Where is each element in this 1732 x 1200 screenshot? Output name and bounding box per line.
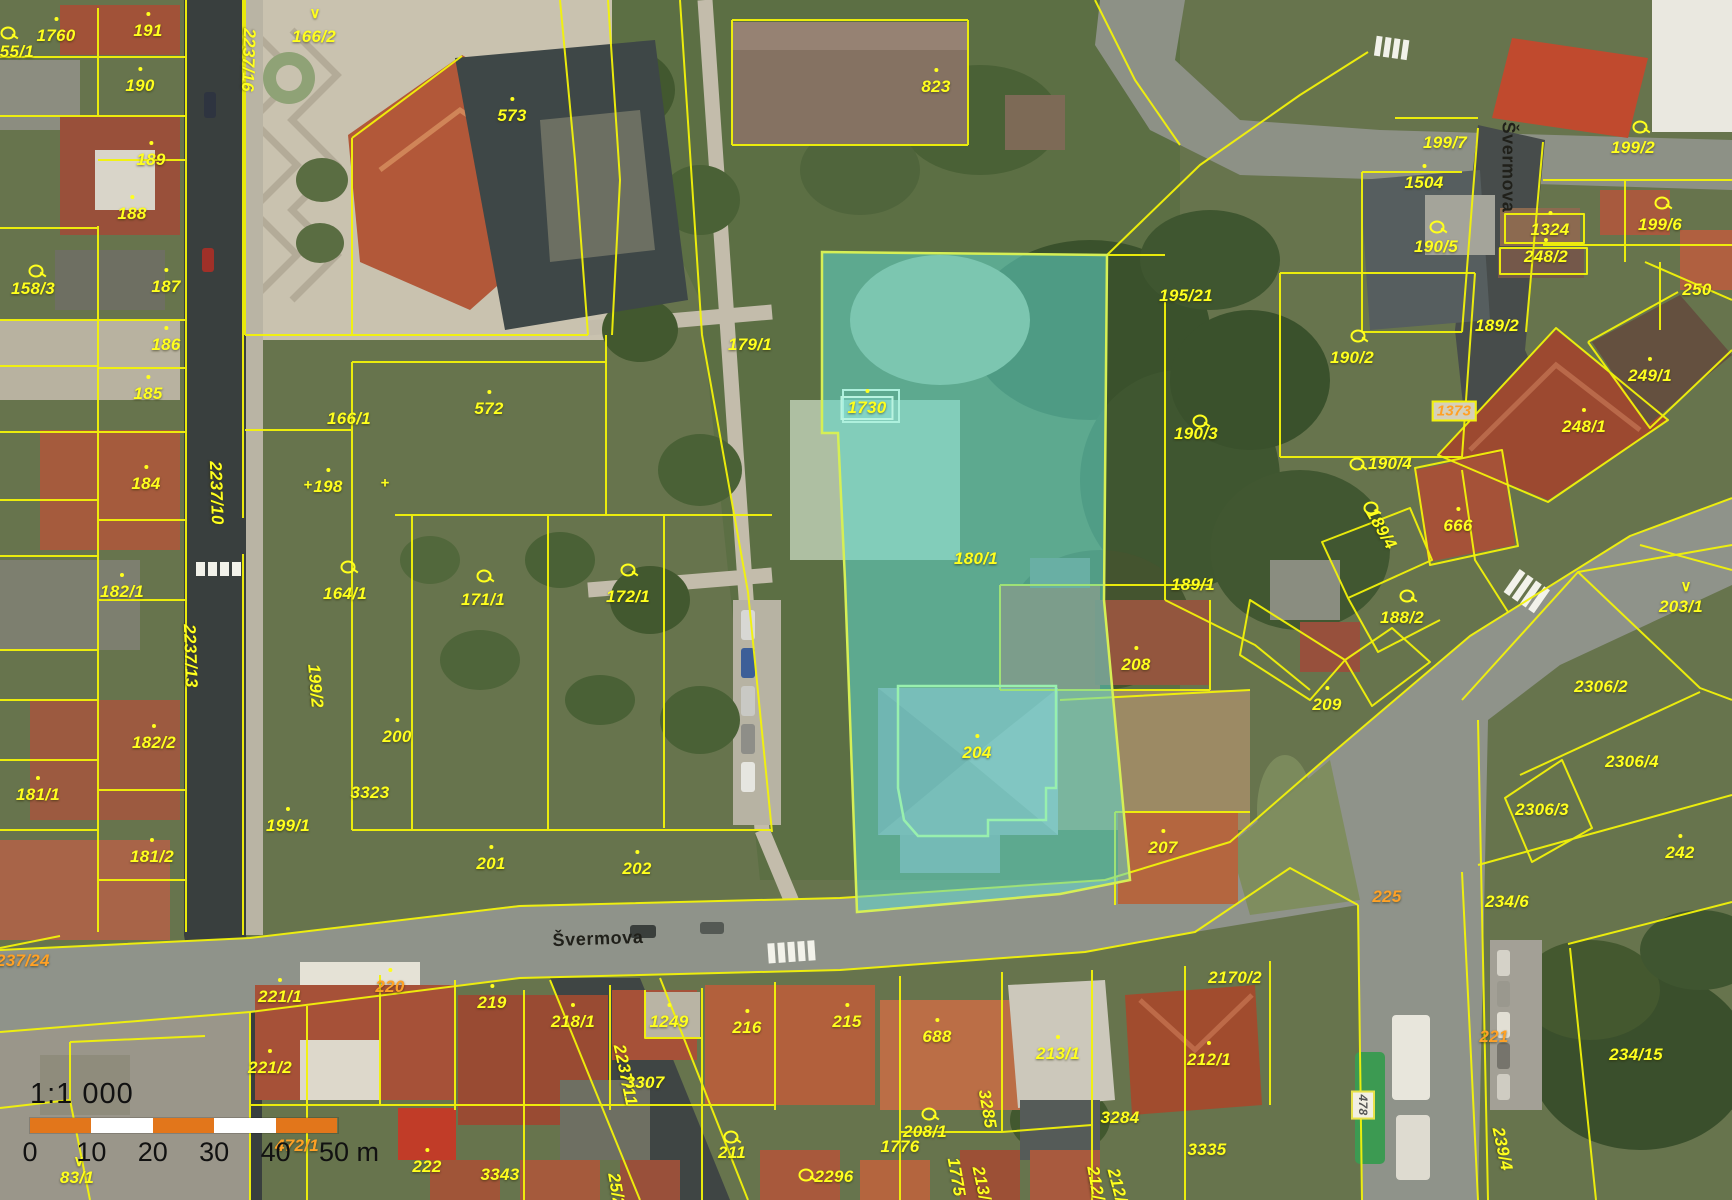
parcel-label: 1373 — [1432, 401, 1477, 422]
circle-map-symbol — [621, 564, 636, 577]
scale-ruler — [30, 1118, 338, 1133]
parcel-label: 166/1 — [327, 409, 371, 429]
scale-tick: 40 — [261, 1137, 291, 1168]
parcel-label: 164/1 — [323, 584, 367, 604]
parcel-label: 2306/3 — [1515, 800, 1569, 820]
parcel-label: 2237/24 — [0, 951, 50, 971]
parcel-label: 249/1 — [1628, 366, 1672, 386]
parcel-label: 199/1 — [266, 816, 310, 836]
map-canvas[interactable]: 1760155/1191190189188187158/3166/22237/1… — [0, 0, 1732, 1200]
parcel-label: 216 — [732, 1018, 761, 1038]
parcel-label: 181/1 — [16, 785, 60, 805]
parcel-label: 185 — [133, 384, 162, 404]
parcel-label: 1249 — [649, 1012, 688, 1032]
scale-tick: 0 — [22, 1137, 37, 1168]
parcel-label: 1730 — [840, 396, 893, 420]
parcel-label: 3335 — [1187, 1140, 1226, 1160]
scale-bar: 1:1 000 01020304050 m — [30, 1078, 360, 1173]
scale-tick: 20 — [138, 1137, 168, 1168]
scale-segment — [30, 1118, 91, 1133]
parcel-label: 25/2 — [603, 1171, 629, 1200]
parcel-label: 250 — [1682, 280, 1711, 300]
parcel-label: 2296 — [814, 1167, 853, 1187]
parcel-label: 195/21 — [1159, 286, 1213, 306]
scale-tick: 10 — [76, 1137, 106, 1168]
parcel-label: 199/7 — [1423, 133, 1467, 153]
v-map-symbol: ∨ — [1681, 577, 1692, 595]
parcel-label: 221/2 — [248, 1058, 292, 1078]
scale-tick: 30 — [199, 1137, 229, 1168]
parcel-label: 221 — [1479, 1027, 1508, 1047]
parcel-label: 225 — [1372, 887, 1401, 907]
circle-map-symbol — [1, 27, 16, 40]
parcel-label: 182/2 — [132, 733, 176, 753]
parcel-label: 189 — [136, 150, 165, 170]
parcel-label: 212/1 — [1187, 1050, 1231, 1070]
parcel-label: 198 — [313, 477, 342, 497]
parcel-label: 182/1 — [100, 582, 144, 602]
circle-map-symbol — [1350, 458, 1365, 471]
parcel-label: 2306/4 — [1605, 752, 1659, 772]
parcel-label: 823 — [921, 77, 950, 97]
parcel-label: 190/4 — [1368, 454, 1412, 474]
parcel-label: 184 — [131, 474, 160, 494]
parcel-label: 200 — [382, 727, 411, 747]
circle-map-symbol — [1430, 221, 1445, 234]
parcel-label: 688 — [922, 1027, 951, 1047]
scale-tick-labels: 01020304050 m — [30, 1137, 360, 1173]
parcel-label: 248/2 — [1524, 247, 1568, 267]
scale-segment — [276, 1118, 337, 1133]
label-layer: 1760155/1191190189188187158/3166/22237/1… — [0, 0, 1732, 1200]
parcel-label: 572 — [474, 399, 503, 419]
parcel-label: 180/1 — [954, 549, 998, 569]
parcel-label: 191 — [133, 21, 162, 41]
parcel-label: 187 — [151, 277, 180, 297]
parcel-label: 2170/2 — [1208, 968, 1262, 988]
parcel-label: 1504 — [1404, 173, 1443, 193]
parcel-label: 573 — [497, 106, 526, 126]
circle-map-symbol — [1400, 590, 1415, 603]
parcel-label: 199/6 — [1638, 215, 1682, 235]
parcel-label: 666 — [1443, 516, 1472, 536]
parcel-label: 207 — [1148, 838, 1177, 858]
circle-map-symbol — [1364, 502, 1379, 515]
scale-segment — [153, 1118, 214, 1133]
street-label: Švermova — [1498, 122, 1519, 213]
scale-segment — [214, 1118, 275, 1133]
circle-map-symbol — [724, 1131, 739, 1144]
parcel-label: 239/4 — [1488, 1125, 1517, 1172]
parcel-label: 190/5 — [1414, 237, 1458, 257]
parcel-label: 234/6 — [1485, 892, 1529, 912]
parcel-label: 3343 — [480, 1165, 519, 1185]
circle-map-symbol — [29, 265, 44, 278]
cross-map-symbol: + — [304, 477, 313, 494]
parcel-label: 188/2 — [1380, 608, 1424, 628]
parcel-label: 203/1 — [1659, 597, 1703, 617]
parcel-label: 2237/13 — [179, 624, 201, 688]
parcel-label: 190 — [125, 76, 154, 96]
parcel-label: 204 — [962, 743, 991, 763]
parcel-label: 3323 — [350, 783, 389, 803]
parcel-label: 2237/16 — [237, 28, 259, 92]
circle-map-symbol — [1655, 197, 1670, 210]
parcel-label: 221/1 — [258, 987, 302, 1007]
parcel-label: 222 — [412, 1157, 441, 1177]
circle-map-symbol — [1193, 415, 1208, 428]
parcel-label: 199/2 — [1611, 138, 1655, 158]
parcel-label: 3307 — [625, 1073, 664, 1093]
parcel-label: 2306/2 — [1574, 677, 1628, 697]
parcel-label: 2237/10 — [205, 461, 227, 525]
circle-map-symbol — [341, 561, 356, 574]
parcel-label: 189/2 — [1475, 316, 1519, 336]
scale-segment — [91, 1118, 152, 1133]
parcel-label: 248/1 — [1562, 417, 1606, 437]
parcel-label: 1775 — [943, 1156, 969, 1198]
parcel-label: 172/1 — [606, 587, 650, 607]
parcel-label: 186 — [151, 335, 180, 355]
parcel-label: 181/2 — [130, 847, 174, 867]
parcel-label: 158/3 — [11, 279, 55, 299]
scale-ratio-label: 1:1 000 — [30, 1078, 360, 1111]
parcel-label: 3285 — [974, 1088, 1000, 1130]
parcel-label: 202 — [622, 859, 651, 879]
parcel-label: 1324 — [1530, 220, 1569, 240]
parcel-label: 171/1 — [461, 590, 505, 610]
circle-map-symbol — [1633, 121, 1648, 134]
street-label: Švermova — [552, 927, 644, 951]
parcel-label: 213/2 — [968, 1164, 997, 1200]
parcel-label: 213/1 — [1036, 1044, 1080, 1064]
circle-map-symbol — [1351, 330, 1366, 343]
parcel-label: 190/2 — [1330, 348, 1374, 368]
scale-tick: 50 m — [319, 1137, 379, 1168]
parcel-label: 209 — [1312, 695, 1341, 715]
parcel-label: 234/15 — [1609, 1045, 1663, 1065]
parcel-label: 1776 — [880, 1137, 919, 1157]
parcel-label: 166/2 — [292, 27, 336, 47]
cross-map-symbol: + — [381, 475, 390, 492]
parcel-label: 218/1 — [551, 1012, 595, 1032]
parcel-label: 219 — [477, 993, 506, 1013]
circle-map-symbol — [477, 570, 492, 583]
parcel-label: 190/3 — [1174, 424, 1218, 444]
v-map-symbol: ∨ — [310, 4, 321, 22]
parcel-label: 189/1 — [1171, 575, 1215, 595]
circle-map-symbol — [922, 1108, 937, 1121]
parcel-label: 199/2 — [303, 663, 327, 709]
parcel-label: 478 — [1351, 1091, 1375, 1120]
parcel-label: 215 — [832, 1012, 861, 1032]
parcel-label: 179/1 — [728, 335, 772, 355]
parcel-label: 220 — [375, 977, 404, 997]
parcel-label: 242 — [1665, 843, 1694, 863]
parcel-label: 208 — [1121, 655, 1150, 675]
parcel-label: 3284 — [1100, 1108, 1139, 1128]
circle-map-symbol — [799, 1169, 814, 1182]
parcel-label: 211 — [718, 1143, 746, 1163]
parcel-label: 201 — [476, 854, 505, 874]
parcel-label: 188 — [117, 204, 146, 224]
parcel-label: 1760 — [36, 26, 75, 46]
parcel-label: 155/1 — [0, 42, 34, 62]
